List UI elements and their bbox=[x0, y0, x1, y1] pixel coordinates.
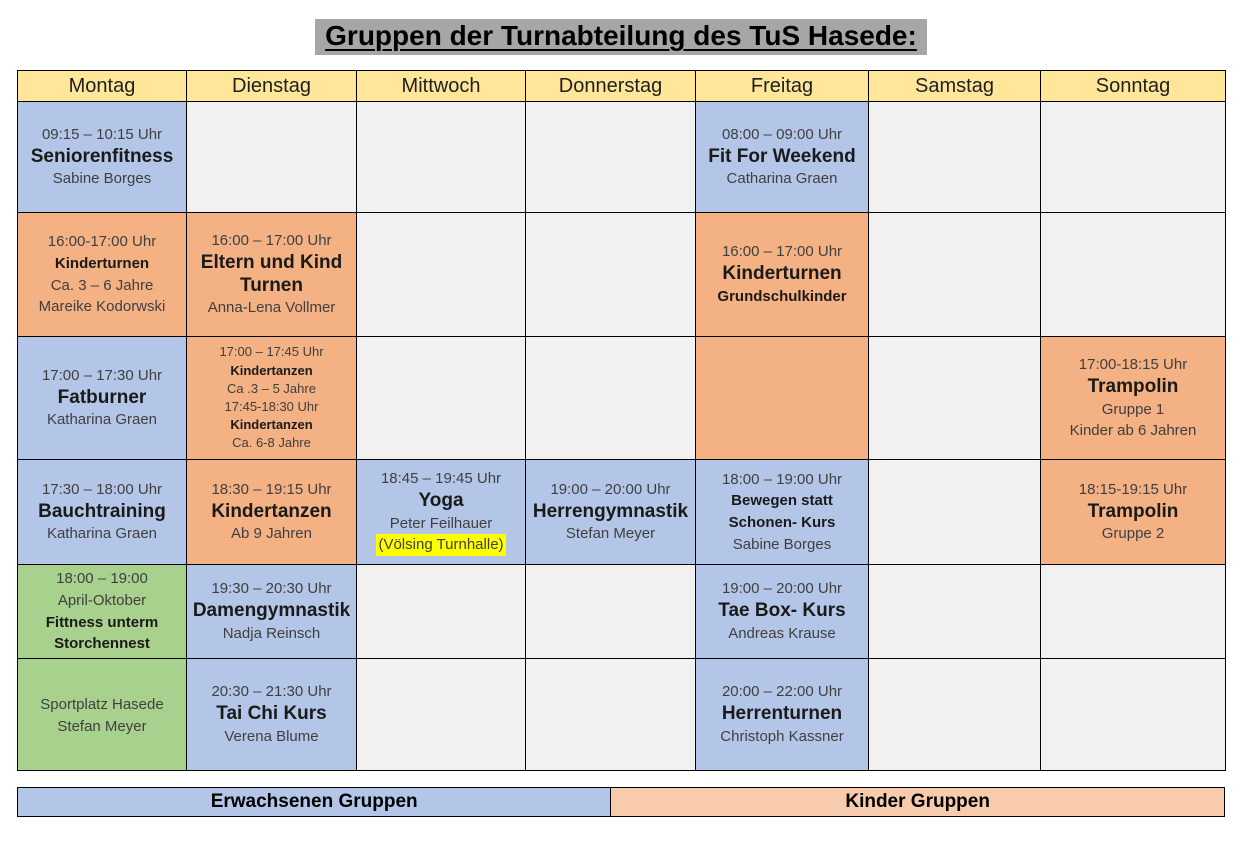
empty-cell bbox=[357, 565, 526, 659]
day-header-mittwoch: Mittwoch bbox=[357, 71, 526, 102]
day-header-montag: Montag bbox=[18, 71, 187, 102]
empty-cell bbox=[869, 337, 1041, 460]
schedule-cell: 18:00 – 19:00 UhrBewegen statt Schonen- … bbox=[696, 460, 869, 565]
cell-content: 18:00 – 19:00April-OktoberFittness unter… bbox=[18, 565, 186, 658]
cell-content: 17:00-18:15 UhrTrampolinGruppe 1Kinder a… bbox=[1041, 351, 1225, 445]
cell-line: Damengymnastik bbox=[193, 600, 350, 623]
schedule-cell: 20:30 – 21:30 UhrTai Chi KursVerena Blum… bbox=[187, 659, 357, 771]
cell-line: Andreas Krause bbox=[728, 623, 836, 645]
cell-content: 08:00 – 09:00 UhrFit For WeekendCatharin… bbox=[696, 121, 868, 193]
cell-content: 17:00 – 17:30 UhrFatburnerKatharina Grae… bbox=[18, 362, 186, 434]
cell-line: Kinderturnen bbox=[722, 263, 841, 286]
schedule-cell: 17:00 – 17:45 UhrKindertanzenCa .3 – 5 J… bbox=[187, 337, 357, 460]
cell-line: Fit For Weekend bbox=[708, 146, 855, 169]
cell-line: Nadja Reinsch bbox=[223, 623, 321, 645]
cell-line: 17:45-18:30 Uhr bbox=[225, 398, 319, 416]
cell-line: Kinder ab 6 Jahren bbox=[1070, 420, 1197, 442]
cell-line: Tae Box- Kurs bbox=[718, 600, 845, 623]
cell-line: 16:00 – 17:00 Uhr bbox=[722, 241, 842, 263]
empty-cell bbox=[1041, 213, 1226, 337]
cell-line: 20:00 – 22:00 Uhr bbox=[722, 681, 842, 703]
cell-line: Tai Chi Kurs bbox=[216, 703, 327, 726]
empty-cell bbox=[1041, 565, 1226, 659]
title-bar: Gruppen der Turnabteilung des TuS Hasede… bbox=[0, 0, 1242, 55]
cell-content: 17:00 – 17:45 UhrKindertanzenCa .3 – 5 J… bbox=[187, 340, 356, 455]
empty-cell bbox=[869, 460, 1041, 565]
cell-line: Stefan Meyer bbox=[57, 716, 146, 738]
cell-line: 09:15 – 10:15 Uhr bbox=[42, 124, 162, 146]
cell-line: Grundschulkinder bbox=[717, 286, 846, 308]
cell-line: Yoga bbox=[418, 490, 463, 513]
empty-cell bbox=[357, 659, 526, 771]
schedule-cell: 17:00 – 17:30 UhrFatburnerKatharina Grae… bbox=[18, 337, 187, 460]
cell-line: Fatburner bbox=[58, 387, 147, 410]
cell-line: Gruppe 1 bbox=[1102, 399, 1165, 421]
empty-cell bbox=[187, 102, 357, 213]
empty-cell bbox=[357, 213, 526, 337]
day-header-donnerstag: Donnerstag bbox=[526, 71, 696, 102]
cell-content: 16:00 – 17:00 UhrEltern und Kind TurnenA… bbox=[187, 227, 356, 322]
cell-line: Trampolin bbox=[1088, 501, 1179, 524]
cell-content: 19:30 – 20:30 UhrDamengymnastikNadja Rei… bbox=[187, 575, 356, 647]
cell-line: 19:30 – 20:30 Uhr bbox=[211, 578, 331, 600]
empty-cell bbox=[526, 659, 696, 771]
cell-line: 16:00 – 17:00 Uhr bbox=[211, 230, 331, 252]
schedule-row: 16:00-17:00 UhrKinderturnenCa. 3 – 6 Jah… bbox=[18, 213, 1226, 337]
empty-cell bbox=[869, 102, 1041, 213]
cell-content: 17:30 – 18:00 UhrBauchtrainingKatharina … bbox=[18, 476, 186, 548]
cell-line: Ca. 3 – 6 Jahre bbox=[51, 275, 154, 297]
cell-line: Sabine Borges bbox=[733, 534, 831, 556]
cell-line: Christoph Kassner bbox=[720, 726, 843, 748]
cell-line: Katharina Graen bbox=[47, 523, 157, 545]
cell-content: Sportplatz HasedeStefan Meyer bbox=[18, 689, 186, 741]
cell-line: Kindertanzen bbox=[230, 416, 312, 434]
cell-line: April-Oktober bbox=[58, 590, 146, 612]
cell-line: 18:45 – 19:45 Uhr bbox=[381, 468, 501, 490]
cell-line: Ca .3 – 5 Jahre bbox=[227, 380, 316, 398]
empty-cell bbox=[869, 565, 1041, 659]
cell-line: Fittness unterm Storchennest bbox=[23, 612, 181, 656]
cell-line: 17:00 – 17:45 Uhr bbox=[219, 343, 323, 361]
schedule-row: 17:30 – 18:00 UhrBauchtrainingKatharina … bbox=[18, 460, 1226, 565]
empty-cell bbox=[357, 102, 526, 213]
page-title: Gruppen der Turnabteilung des TuS Hasede… bbox=[315, 19, 927, 55]
empty-cell bbox=[1041, 659, 1226, 771]
cell-line: Sportplatz Hasede bbox=[40, 694, 163, 716]
cell-line: Eltern und Kind Turnen bbox=[192, 252, 351, 298]
legend-kids-groups: Kinder Gruppen bbox=[611, 787, 1225, 817]
cell-line: 17:00-18:15 Uhr bbox=[1079, 354, 1187, 376]
cell-content: 19:00 – 20:00 UhrTae Box- KursAndreas Kr… bbox=[696, 575, 868, 647]
cell-content: 19:00 – 20:00 UhrHerrengymnastikStefan M… bbox=[526, 476, 695, 548]
cell-line: Kindertanzen bbox=[211, 501, 331, 524]
cell-content: 16:00 – 17:00 UhrKinderturnenGrundschulk… bbox=[696, 238, 868, 310]
cell-line: Ca. 6-8 Jahre bbox=[232, 434, 311, 452]
empty-cell bbox=[869, 659, 1041, 771]
cell-line: 18:30 – 19:15 Uhr bbox=[211, 479, 331, 501]
empty-cell bbox=[869, 213, 1041, 337]
cell-line: Stefan Meyer bbox=[566, 523, 655, 545]
cell-line: 19:00 – 20:00 Uhr bbox=[550, 479, 670, 501]
empty-cell bbox=[526, 213, 696, 337]
legend-adult-groups: Erwachsenen Gruppen bbox=[17, 787, 611, 817]
cell-content: 18:30 – 19:15 UhrKindertanzenAb 9 Jahren bbox=[187, 476, 356, 548]
empty-cell bbox=[526, 337, 696, 460]
schedule-row: 18:00 – 19:00April-OktoberFittness unter… bbox=[18, 565, 1226, 659]
cell-content: 18:45 – 19:45 UhrYogaPeter Feilhauer(Völ… bbox=[357, 465, 525, 559]
schedule-cell: 16:00 – 17:00 UhrEltern und Kind TurnenA… bbox=[187, 213, 357, 337]
day-header-row: MontagDienstagMittwochDonnerstagFreitagS… bbox=[18, 71, 1226, 102]
empty-cell bbox=[696, 337, 869, 460]
schedule-sheet: Gruppen der Turnabteilung des TuS Hasede… bbox=[0, 0, 1242, 850]
schedule-row: Sportplatz HasedeStefan Meyer20:30 – 21:… bbox=[18, 659, 1226, 771]
cell-line: 17:00 – 17:30 Uhr bbox=[42, 365, 162, 387]
schedule-cell: 08:00 – 09:00 UhrFit For WeekendCatharin… bbox=[696, 102, 869, 213]
schedule-cell: Sportplatz HasedeStefan Meyer bbox=[18, 659, 187, 771]
cell-line: Bauchtraining bbox=[38, 501, 166, 524]
cell-line: 18:00 – 19:00 bbox=[56, 568, 148, 590]
schedule-cell: 18:30 – 19:15 UhrKindertanzenAb 9 Jahren bbox=[187, 460, 357, 565]
cell-line: 18:00 – 19:00 Uhr bbox=[722, 469, 842, 491]
cell-line: Gruppe 2 bbox=[1102, 523, 1165, 545]
day-header-dienstag: Dienstag bbox=[187, 71, 357, 102]
schedule-row: 09:15 – 10:15 UhrSeniorenfitnessSabine B… bbox=[18, 102, 1226, 213]
empty-cell bbox=[357, 337, 526, 460]
cell-line: Bewegen statt Schonen- Kurs bbox=[701, 490, 863, 534]
empty-cell bbox=[1041, 102, 1226, 213]
cell-line: 17:30 – 18:00 Uhr bbox=[42, 479, 162, 501]
cell-line: Ab 9 Jahren bbox=[231, 523, 312, 545]
day-header-freitag: Freitag bbox=[696, 71, 869, 102]
schedule-cell: 18:45 – 19:45 UhrYogaPeter Feilhauer(Völ… bbox=[357, 460, 526, 565]
cell-line: Seniorenfitness bbox=[31, 146, 174, 169]
cell-content: 16:00-17:00 UhrKinderturnenCa. 3 – 6 Jah… bbox=[18, 228, 186, 321]
cell-line: Herrengymnastik bbox=[533, 501, 688, 524]
schedule-cell: 09:15 – 10:15 UhrSeniorenfitnessSabine B… bbox=[18, 102, 187, 213]
empty-cell bbox=[526, 102, 696, 213]
day-header-samstag: Samstag bbox=[869, 71, 1041, 102]
schedule-cell: 19:00 – 20:00 UhrTae Box- KursAndreas Kr… bbox=[696, 565, 869, 659]
schedule-cell: 17:30 – 18:00 UhrBauchtrainingKatharina … bbox=[18, 460, 187, 565]
cell-content: 09:15 – 10:15 UhrSeniorenfitnessSabine B… bbox=[18, 121, 186, 193]
schedule-cell: 19:30 – 20:30 UhrDamengymnastikNadja Rei… bbox=[187, 565, 357, 659]
schedule-cell: 16:00 – 17:00 UhrKinderturnenGrundschulk… bbox=[696, 213, 869, 337]
legend: Erwachsenen Gruppen Kinder Gruppen bbox=[17, 787, 1225, 817]
cell-line: 08:00 – 09:00 Uhr bbox=[722, 124, 842, 146]
cell-line: Trampolin bbox=[1088, 376, 1179, 399]
empty-cell bbox=[526, 565, 696, 659]
cell-line: Kindertanzen bbox=[230, 362, 312, 380]
cell-line: Mareike Kodorwski bbox=[39, 296, 166, 318]
schedule-cell: 17:00-18:15 UhrTrampolinGruppe 1Kinder a… bbox=[1041, 337, 1226, 460]
cell-line: Catharina Graen bbox=[727, 168, 838, 190]
cell-line: 19:00 – 20:00 Uhr bbox=[722, 578, 842, 600]
cell-line: Katharina Graen bbox=[47, 409, 157, 431]
cell-line: 20:30 – 21:30 Uhr bbox=[211, 681, 331, 703]
schedule-body: 09:15 – 10:15 UhrSeniorenfitnessSabine B… bbox=[18, 102, 1226, 771]
schedule-cell: 16:00-17:00 UhrKinderturnenCa. 3 – 6 Jah… bbox=[18, 213, 187, 337]
schedule-cell: 19:00 – 20:00 UhrHerrengymnastikStefan M… bbox=[526, 460, 696, 565]
cell-content: 20:30 – 21:30 UhrTai Chi KursVerena Blum… bbox=[187, 678, 356, 750]
cell-line: 18:15-19:15 Uhr bbox=[1079, 479, 1187, 501]
cell-line: Anna-Lena Vollmer bbox=[208, 297, 336, 319]
cell-content: 18:00 – 19:00 UhrBewegen statt Schonen- … bbox=[696, 466, 868, 559]
schedule-cell: 20:00 – 22:00 UhrHerrenturnenChristoph K… bbox=[696, 659, 869, 771]
cell-line: Kinderturnen bbox=[55, 253, 149, 275]
cell-line: 16:00-17:00 Uhr bbox=[48, 231, 156, 253]
cell-content: 18:15-19:15 UhrTrampolinGruppe 2 bbox=[1041, 476, 1225, 548]
schedule-row: 17:00 – 17:30 UhrFatburnerKatharina Grae… bbox=[18, 337, 1226, 460]
schedule-cell: 18:15-19:15 UhrTrampolinGruppe 2 bbox=[1041, 460, 1226, 565]
cell-line: (Völsing Turnhalle) bbox=[376, 534, 505, 556]
cell-line: Verena Blume bbox=[224, 726, 318, 748]
schedule-cell: 18:00 – 19:00April-OktoberFittness unter… bbox=[18, 565, 187, 659]
cell-line: Peter Feilhauer bbox=[390, 513, 493, 535]
cell-content: 20:00 – 22:00 UhrHerrenturnenChristoph K… bbox=[696, 678, 868, 750]
schedule-table: MontagDienstagMittwochDonnerstagFreitagS… bbox=[17, 70, 1226, 771]
day-header-sonntag: Sonntag bbox=[1041, 71, 1226, 102]
cell-line: Herrenturnen bbox=[722, 703, 842, 726]
cell-line: Sabine Borges bbox=[53, 168, 151, 190]
